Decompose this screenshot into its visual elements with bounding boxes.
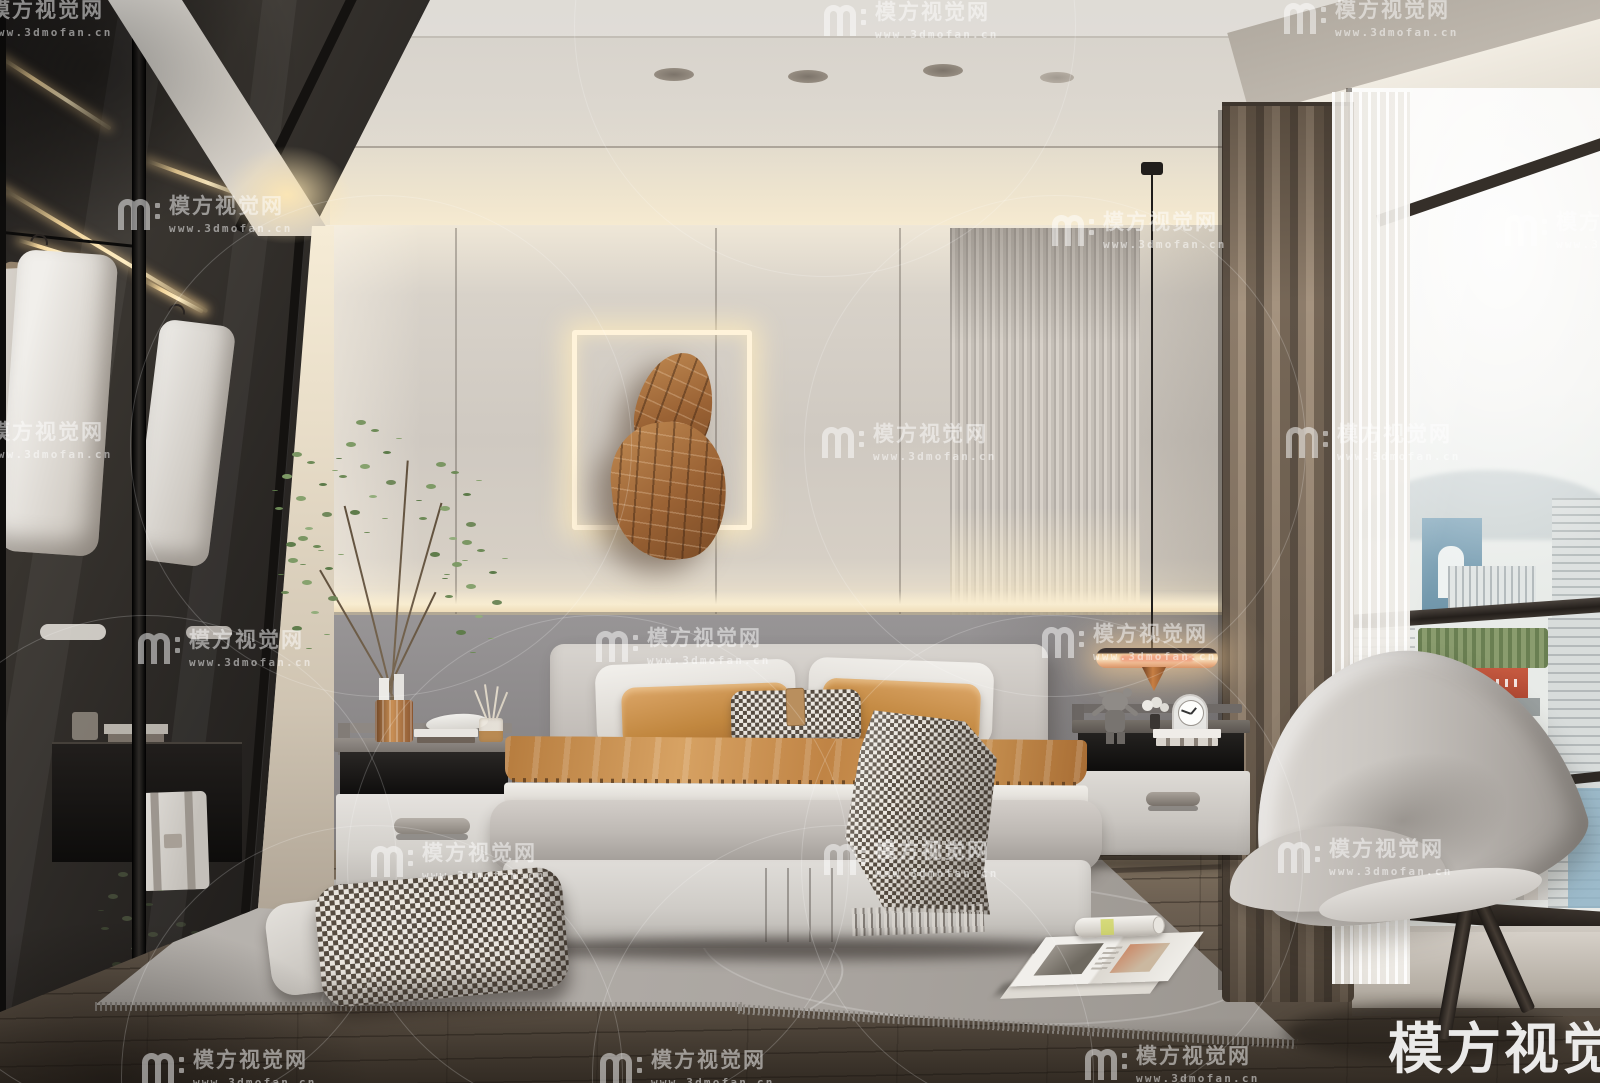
plant-leaves xyxy=(462,540,472,545)
bed xyxy=(480,640,1105,960)
clock-hand-minute xyxy=(1181,710,1191,715)
ceiling-spotlight xyxy=(654,68,694,81)
plant-leaves xyxy=(292,452,302,457)
stacked-books xyxy=(1153,729,1221,738)
wall-panel-seam xyxy=(455,228,457,614)
drawer-handle xyxy=(1146,792,1200,806)
rolled-towel xyxy=(186,626,232,639)
rolled-page-end xyxy=(1152,916,1165,934)
clock-hand-hour xyxy=(1190,707,1197,714)
pillow-strap xyxy=(785,688,805,727)
toy-leg xyxy=(1106,732,1114,744)
drawer-handle xyxy=(394,818,470,834)
drawer-handle-slot xyxy=(1148,806,1198,811)
ceiling-spotlight xyxy=(788,70,828,83)
rolled-towel xyxy=(40,624,106,640)
copper-vase xyxy=(375,700,413,742)
cove-light xyxy=(330,148,1245,236)
wall-slat-panel xyxy=(950,228,1140,616)
base-seam xyxy=(809,868,811,942)
vignette xyxy=(0,1018,1600,1083)
plant-leaves xyxy=(436,462,446,467)
magazine-rolled-page xyxy=(1074,915,1165,938)
hanging-shirt xyxy=(0,249,118,557)
ceiling-bulkhead-edge xyxy=(300,36,1250,38)
clock-face xyxy=(1178,700,1204,726)
stacked-books xyxy=(417,737,475,743)
pendant-pink-core xyxy=(1120,655,1194,662)
toy-body xyxy=(1105,710,1125,733)
ceiling-spotlight xyxy=(1040,72,1074,83)
flower-vase xyxy=(1150,714,1160,729)
trunk-strap xyxy=(150,793,161,891)
toy-ear xyxy=(1123,688,1132,697)
toy-arm xyxy=(1124,704,1139,717)
trunk-strap xyxy=(184,791,195,889)
ceiling-spotlight xyxy=(923,64,963,77)
base-seam xyxy=(787,868,789,942)
interior-diffuser xyxy=(72,712,98,740)
white-trunk xyxy=(138,791,209,891)
plant-reflection xyxy=(118,872,128,877)
plant-leaves xyxy=(298,536,308,541)
stacked-books xyxy=(414,729,478,737)
rolled-page-band xyxy=(1101,919,1115,935)
pendant-cable xyxy=(1151,174,1153,650)
throw-fringe xyxy=(852,904,985,937)
toy-leg xyxy=(1117,732,1125,744)
wall-sculpture xyxy=(600,352,740,564)
bedroom-render: 模方视觉网 模方视觉网www.3dmofan.cn模方视觉网www.3dmofa… xyxy=(0,0,1600,1083)
vignette xyxy=(0,0,300,240)
base-seam xyxy=(765,868,767,942)
base-seam xyxy=(831,868,833,942)
drawer-handle-slot xyxy=(396,834,468,840)
trunk-lock xyxy=(164,834,182,849)
sculpture-bottom xyxy=(605,416,733,565)
arch-clock xyxy=(1172,694,1208,732)
stacked-books xyxy=(1156,738,1218,746)
magazine xyxy=(987,915,1175,1009)
plant-leaves xyxy=(356,420,366,425)
wall-panel-seam xyxy=(899,228,901,614)
white-flowers xyxy=(1142,700,1153,711)
